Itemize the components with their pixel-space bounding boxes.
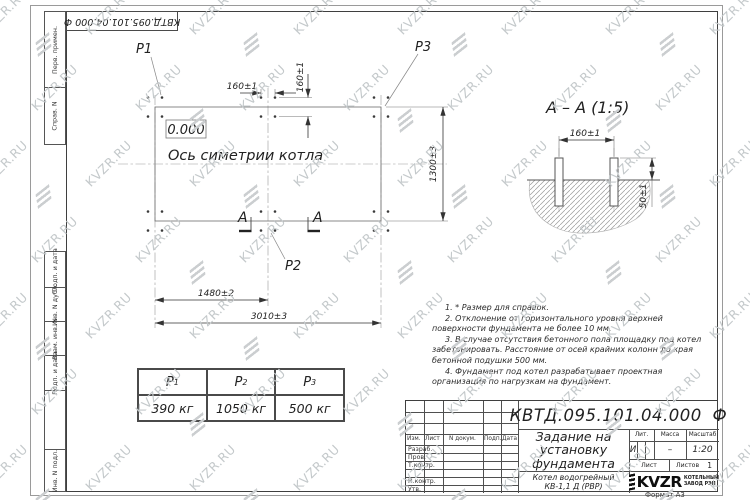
dim-bolt-horizontal: 160±1	[227, 82, 257, 92]
dim-bolt-vertical: 160±1	[296, 62, 306, 92]
dim-span-3010: 3010±3	[251, 312, 287, 322]
elevation-value: 0.000	[167, 123, 204, 138]
load-point-p3-label: P3	[415, 40, 431, 55]
section-dim-height: 50±1	[639, 184, 649, 209]
section-dimension-lines	[559, 140, 652, 180]
concrete-pad-hatch	[529, 180, 650, 233]
load-point-p2-label: P2	[285, 259, 301, 274]
drawing-canvas: P1 P2 P3 0.000 Ось симетрии котла А А 16…	[0, 0, 750, 500]
section-view: А – А (1:5) 160±1 50±1	[527, 98, 660, 233]
section-bolt-left	[555, 158, 563, 206]
section-title: А – А (1:5)	[545, 98, 629, 117]
dim-span-1480: 1480±2	[198, 289, 234, 299]
section-dim-spacing: 160±1	[570, 129, 600, 139]
section-letter-right: А	[312, 210, 323, 226]
section-bolt-right	[610, 158, 618, 206]
axis-of-symmetry-label: Ось симетрии котла	[168, 148, 323, 164]
dim-width-1300: 1300±3	[429, 146, 439, 182]
section-cut-marks	[239, 217, 320, 231]
section-letter-left: А	[237, 210, 248, 226]
section-extension-lines	[559, 136, 656, 158]
load-point-p1-label: P1	[136, 42, 152, 57]
dimension-lines	[155, 74, 443, 323]
